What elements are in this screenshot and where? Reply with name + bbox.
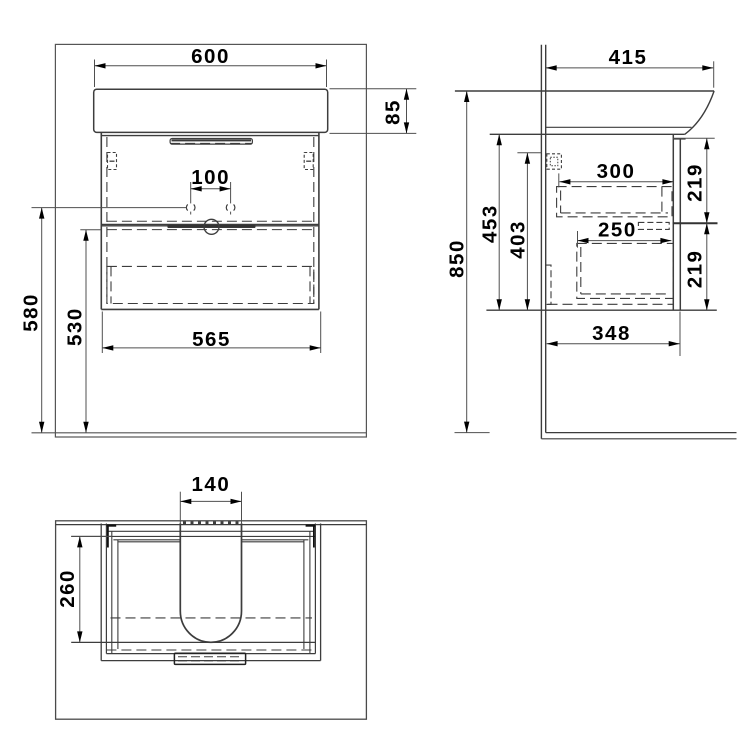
svg-text:250: 250	[598, 219, 637, 242]
svg-text:300: 300	[597, 160, 636, 183]
svg-text:100: 100	[191, 166, 230, 189]
svg-text:415: 415	[609, 46, 648, 69]
svg-text:140: 140	[192, 473, 231, 496]
svg-text:453: 453	[478, 204, 501, 243]
svg-text:530: 530	[64, 307, 87, 346]
svg-text:565: 565	[192, 328, 231, 351]
svg-text:219: 219	[683, 163, 706, 202]
svg-text:600: 600	[191, 45, 230, 68]
svg-text:580: 580	[19, 293, 42, 332]
svg-text:348: 348	[592, 322, 631, 345]
svg-text:85: 85	[381, 99, 404, 125]
svg-text:260: 260	[56, 569, 79, 608]
svg-text:850: 850	[445, 239, 468, 278]
svg-text:219: 219	[683, 250, 706, 289]
svg-text:403: 403	[507, 220, 530, 259]
